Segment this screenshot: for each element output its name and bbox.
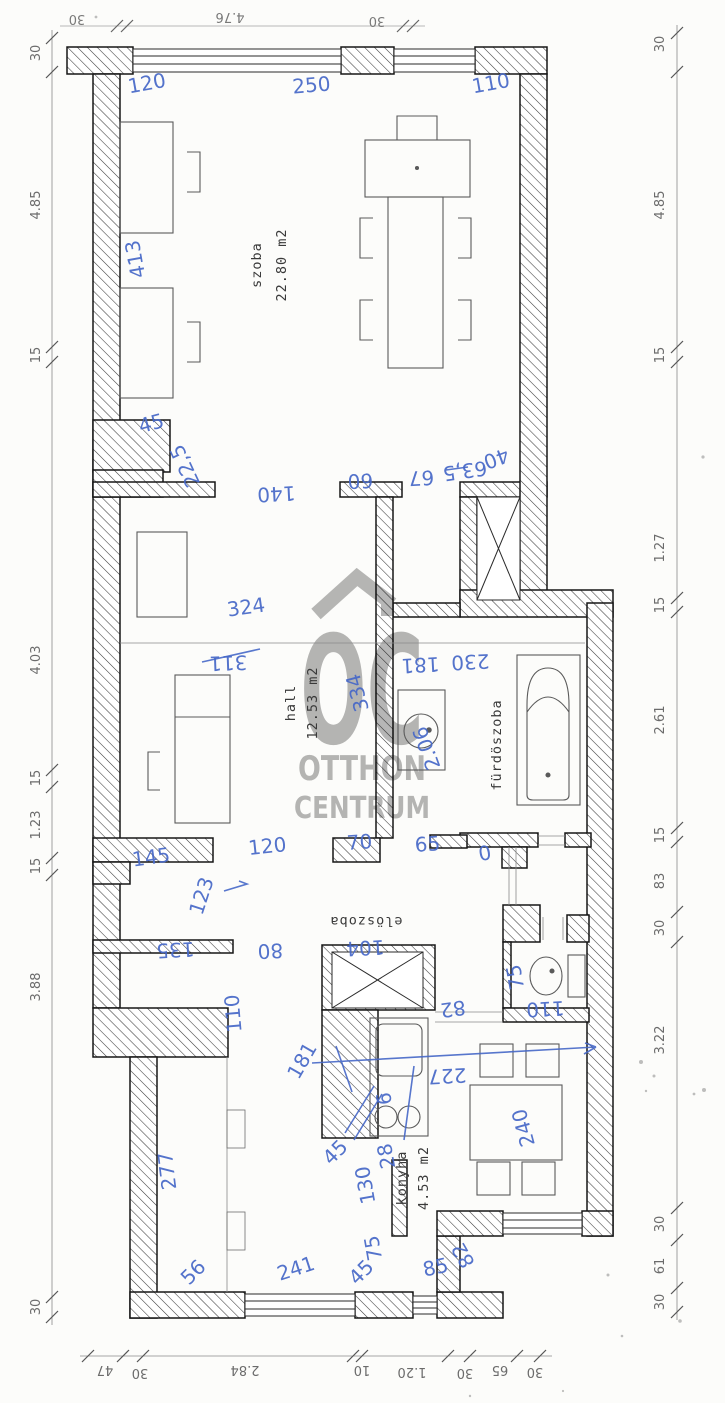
dimension-chain-left: 30 4.85 15 4.03 15 1.23 15 3.88 30 — [29, 30, 58, 1325]
room-label-furdoszoba: fürdöszoba — [489, 699, 505, 790]
handwritten-dim: 181 — [401, 652, 440, 678]
table-dot — [416, 167, 419, 170]
wall — [93, 862, 130, 884]
dim-label: 65 — [492, 1362, 509, 1377]
shaft-icon — [332, 952, 423, 1008]
window — [394, 49, 475, 72]
dimension-chain-top: 30 4.76 30 — [60, 9, 425, 32]
pen-line — [404, 1066, 414, 1140]
dining-table — [388, 197, 443, 368]
dim-label: 4.03 — [29, 646, 44, 675]
toilet-tank — [568, 955, 585, 997]
wall-right-outer — [520, 74, 547, 603]
handwritten-dim: 311 — [209, 650, 248, 675]
dim-label: 10 — [354, 1362, 371, 1377]
room-name: fürdöszoba — [489, 699, 505, 790]
handwritten-dim: 145 — [130, 843, 171, 872]
dim-label: 1.27 — [653, 534, 668, 563]
handwritten-dim: 110 — [526, 996, 565, 1022]
wall-wc — [503, 905, 540, 942]
bathtub-arc — [527, 697, 569, 712]
stove-burner-icon — [398, 1106, 420, 1128]
handwritten-dim: 230 — [451, 649, 490, 675]
dim-label: 1.20 — [398, 1364, 427, 1379]
wall-wc — [567, 915, 589, 942]
wall-block — [93, 1008, 228, 1057]
handwritten-dim: 56 — [176, 1255, 211, 1290]
window — [413, 1296, 437, 1314]
handwritten-dim: 65 — [414, 831, 441, 857]
handwritten-dim: 140 — [257, 481, 296, 507]
handwritten-dim: 70 — [346, 829, 373, 855]
dim-label: 47 — [97, 1362, 114, 1377]
dim-label: 3.88 — [29, 973, 44, 1002]
dim-label: 30 — [29, 45, 44, 62]
pen-arrow — [224, 881, 247, 891]
bed — [120, 122, 173, 233]
handwritten-dim: 123 — [184, 874, 219, 918]
wall-right-outer — [587, 603, 613, 1236]
dim-label: 30 — [527, 1364, 544, 1379]
bed — [175, 675, 230, 823]
wardrobe — [137, 532, 187, 617]
room-area: 22.80 m2 — [274, 228, 290, 301]
handwritten-dim: 45 — [318, 1135, 353, 1170]
handwritten-dim: 110 — [470, 68, 512, 98]
room-label-eloszoba: elöszoba — [329, 913, 402, 929]
toilet-dot — [550, 969, 554, 973]
wall-left-outer — [130, 1057, 157, 1318]
dim-label: 1.23 — [29, 811, 44, 840]
dim-label: 30 — [653, 1294, 668, 1311]
toilet-bowl — [530, 957, 562, 995]
bathtub-drain — [546, 773, 550, 777]
handwritten-dim: 80 — [257, 938, 284, 963]
room-name: szoba — [249, 242, 265, 288]
dim-label: 15 — [29, 347, 44, 364]
room-area: 12.53 m2 — [305, 666, 321, 739]
handwritten-dim: 104 — [346, 935, 385, 961]
dim-label: 30 — [653, 1216, 668, 1233]
wall — [341, 47, 394, 74]
dim-label: 30 — [369, 13, 386, 28]
handwritten-dim: 60 — [347, 468, 374, 493]
dimension-chain-bottom: 47 30 2.84 10 1.20 30 65 30 — [80, 1350, 552, 1380]
dim-label: 4.85 — [29, 191, 44, 220]
dim-label: 30 — [457, 1365, 474, 1380]
window — [133, 49, 341, 72]
chair — [458, 218, 471, 258]
dim-label: 3.22 — [653, 1026, 668, 1055]
dim-label: 4.76 — [216, 9, 245, 24]
handwritten-dim: 227 — [428, 1063, 467, 1089]
shaft-icon — [477, 497, 520, 600]
nightstand — [187, 152, 200, 192]
chair — [480, 1044, 513, 1077]
handwritten-dim: 135 — [156, 937, 195, 963]
handwritten-dim: 250 — [291, 71, 331, 98]
wall — [565, 833, 591, 847]
chair — [458, 300, 471, 340]
dim-label: 4.85 — [653, 191, 668, 220]
dimension-chain-right: 30 4.85 15 1.27 15 2.61 15 83 30 3.22 30… — [653, 25, 683, 1320]
dim-label: 15 — [653, 347, 668, 364]
room-label-szoba: szoba 22.80 m2 — [249, 228, 290, 301]
handwritten-dim: 181 — [282, 1038, 322, 1083]
wall-bottom — [355, 1292, 413, 1318]
room-label-konyha: konyha 4.53 m2 — [394, 1146, 432, 1210]
dim-label: 30 — [653, 920, 668, 937]
handwritten-dim: 277 — [153, 1150, 181, 1191]
dim-label: 30 — [69, 11, 86, 26]
wall — [67, 47, 133, 74]
handwritten-dim: 240 — [507, 1106, 540, 1149]
chair — [477, 1162, 510, 1195]
dim-label: 2.61 — [653, 706, 668, 735]
chair — [360, 218, 373, 258]
room-name: elöszoba — [329, 913, 402, 929]
nightstand — [148, 752, 160, 790]
kitchen-sink — [376, 1024, 422, 1076]
handwritten-dim: 413 — [120, 238, 150, 280]
handwritten-dim: 67 — [408, 465, 435, 490]
nightstand — [187, 322, 200, 362]
handwritten-dim: 120 — [247, 832, 287, 860]
chair — [360, 300, 373, 340]
handwritten-dim: 28 — [372, 1142, 400, 1171]
bed — [120, 288, 173, 398]
dim-label: 15 — [653, 827, 668, 844]
handwritten-dim: 75 — [501, 963, 529, 992]
floor-plan-drawing: OC OTTHON CENTRUM — [0, 0, 725, 1403]
wall — [502, 847, 527, 868]
handwritten-dim: 110 — [219, 994, 246, 1034]
handwritten-dim: 82 — [439, 995, 468, 1022]
wall-bottom — [437, 1292, 503, 1318]
handwritten-dim: 120 — [126, 68, 168, 98]
window — [503, 1213, 582, 1234]
dim-label: 15 — [29, 858, 44, 875]
scanned-floor-plan: OC OTTHON CENTRUM — [0, 0, 725, 1403]
dim-label: 2.84 — [231, 1362, 260, 1377]
dim-label: 61 — [653, 1258, 668, 1275]
chair — [522, 1162, 555, 1195]
dim-label: 30 — [653, 36, 668, 53]
bathtub-inner — [527, 668, 569, 800]
watermark-line2: CENTRUM — [294, 791, 430, 826]
wall-kitchen-bottom — [437, 1211, 503, 1236]
window — [245, 1294, 355, 1316]
handwritten-dim: 63,5 — [441, 456, 488, 486]
room-area: 4.53 m2 — [416, 1146, 432, 1210]
handwritten-dim: 324 — [225, 593, 266, 622]
watermark-line1: OTTHON — [298, 749, 426, 789]
chair — [397, 116, 437, 140]
dim-label: 15 — [29, 770, 44, 787]
wall — [460, 833, 538, 847]
dim-label: 30 — [29, 1299, 44, 1316]
room-name: hall — [283, 685, 299, 722]
wall — [460, 497, 477, 602]
wall-kitchen-bottom — [582, 1211, 613, 1236]
wall — [475, 47, 547, 74]
handwritten-dim: 241 — [274, 1251, 318, 1286]
dim-label: 30 — [132, 1365, 149, 1380]
dim-label: 83 — [653, 873, 668, 890]
dim-label: 15 — [653, 597, 668, 614]
wall-bottom — [130, 1292, 245, 1318]
